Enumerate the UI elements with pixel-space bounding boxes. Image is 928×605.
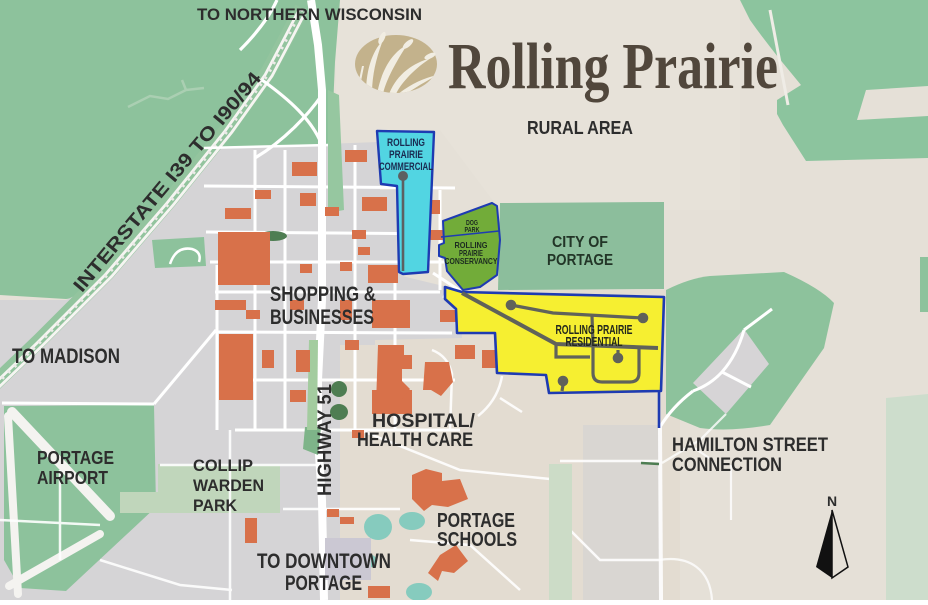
svg-text:RESIDENTIAL: RESIDENTIAL	[566, 334, 623, 349]
svg-text:TO DOWNTOWN: TO DOWNTOWN	[257, 550, 391, 573]
svg-text:BUSINESSES: BUSINESSES	[270, 306, 374, 329]
svg-text:AIRPORT: AIRPORT	[37, 468, 108, 488]
svg-text:DOG: DOG	[466, 220, 478, 227]
svg-text:WARDEN: WARDEN	[193, 476, 264, 495]
svg-text:Rolling Prairie: Rolling Prairie	[448, 30, 778, 103]
svg-text:TO NORTHERN WISCONSIN: TO NORTHERN WISCONSIN	[197, 5, 422, 24]
svg-text:PARK: PARK	[193, 496, 238, 515]
svg-text:HOSPITAL/: HOSPITAL/	[372, 411, 476, 432]
svg-text:PORTAGE: PORTAGE	[285, 572, 362, 595]
svg-text:HAMILTON STREET: HAMILTON STREET	[672, 435, 828, 456]
svg-text:CITY OF: CITY OF	[552, 234, 608, 251]
svg-text:PORTAGE: PORTAGE	[547, 252, 613, 269]
svg-text:RURAL AREA: RURAL AREA	[527, 118, 633, 138]
svg-text:CONSERVANCY: CONSERVANCY	[445, 256, 498, 266]
svg-text:TO MADISON: TO MADISON	[12, 345, 120, 368]
svg-text:N: N	[827, 493, 837, 509]
svg-text:SCHOOLS: SCHOOLS	[437, 529, 517, 551]
svg-text:HEALTH CARE: HEALTH CARE	[357, 430, 473, 451]
svg-text:PORTAGE: PORTAGE	[37, 448, 114, 468]
svg-text:SHOPPING &: SHOPPING &	[270, 283, 376, 306]
svg-text:COMMERCIAL: COMMERCIAL	[379, 161, 433, 173]
svg-text:HIGHWAY 51: HIGHWAY 51	[315, 384, 336, 496]
svg-text:COLLIP: COLLIP	[193, 456, 253, 475]
svg-text:CONNECTION: CONNECTION	[672, 455, 782, 476]
svg-text:PARK: PARK	[465, 227, 480, 234]
svg-text:ROLLING: ROLLING	[387, 137, 425, 149]
svg-text:PRAIRIE: PRAIRIE	[389, 149, 423, 161]
